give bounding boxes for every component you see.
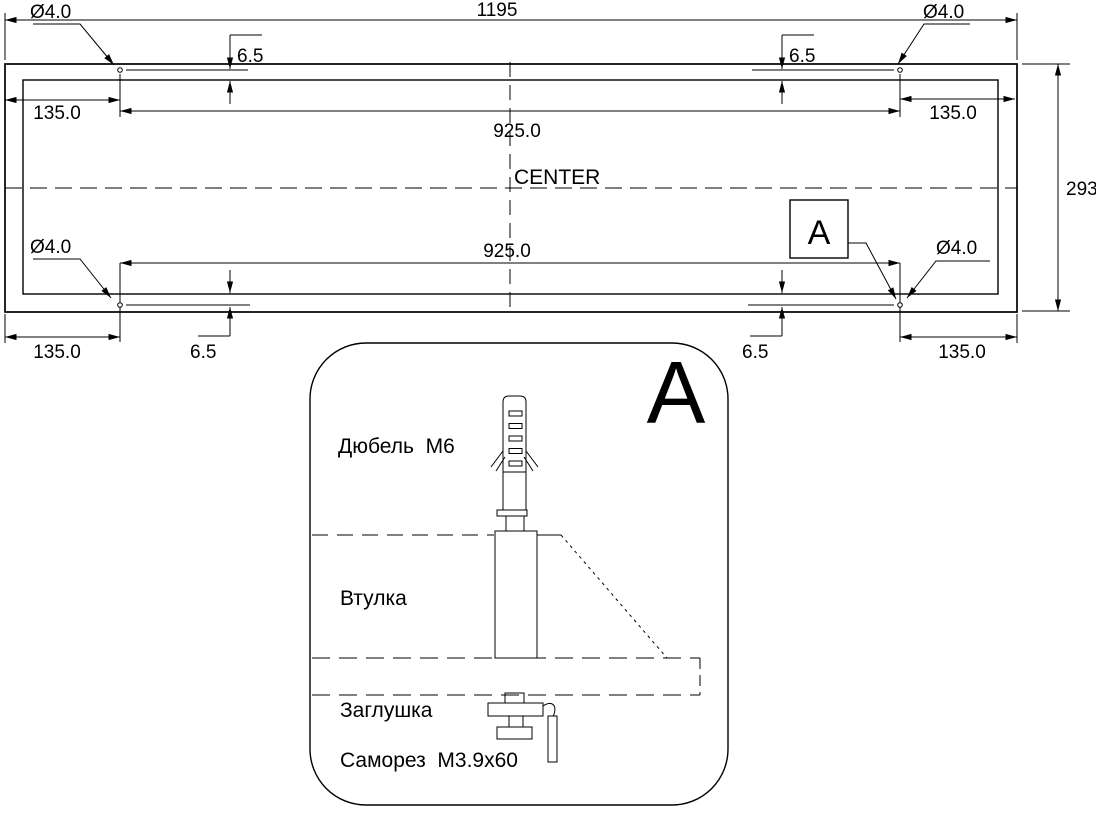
dim-overall-width: 1195 — [5, 0, 1017, 60]
dim-hole-offset-text: 6.5 — [742, 342, 768, 363]
dim-overall-height-text: 293 — [1066, 179, 1096, 200]
dim-hole-offset-bottom-left: 6.5 — [190, 270, 230, 363]
dim-hole-spacing-bottom: 925.0 — [120, 241, 900, 263]
dim-hole-diameter-bottom-right: Ø4.0 — [907, 238, 990, 298]
screw-body — [548, 716, 557, 762]
dim-overall-width-text: 1195 — [477, 0, 518, 21]
dim-hole-offset-text: 6.5 — [237, 46, 263, 67]
detail-a-callout-text: A — [808, 214, 831, 252]
dowel-hatched-shaft — [503, 472, 526, 510]
dim-hole-offset-text: 6.5 — [190, 342, 216, 363]
dim-edge-offset-bottom-left: 135.0 — [5, 314, 120, 363]
detail-a-callout: A — [790, 200, 896, 299]
dim-hole-spacing-text: 925.0 — [493, 121, 541, 142]
dim-edge-offset-text: 135.0 — [929, 103, 977, 124]
dim-hole-diameter-text: Ø4.0 — [936, 238, 977, 259]
dim-hole-diameter-text: Ø4.0 — [30, 237, 71, 258]
dim-overall-height: 293 — [1022, 64, 1096, 311]
dim-edge-offset-text: 135.0 — [33, 342, 81, 363]
dim-hole-offset-bottom-right: 6.5 — [742, 270, 782, 363]
dim-hole-diameter-text: Ø4.0 — [30, 2, 71, 23]
hole-top-left — [118, 68, 123, 73]
dim-hole-offset-text: 6.5 — [789, 46, 815, 67]
dowel-collar — [497, 510, 527, 516]
cad-drawing-canvas: CENTER 1195 29 — [0, 0, 1096, 813]
dim-hole-spacing-text: 925.0 — [483, 241, 531, 262]
plug-cap — [497, 727, 532, 739]
hole-top-right — [898, 68, 903, 73]
dim-edge-offset-text: 135.0 — [33, 103, 81, 124]
bushing-drawing — [495, 531, 537, 658]
drawing-sheet: CENTER 1195 29 — [0, 0, 1096, 813]
label-bushing: Втулка — [340, 587, 407, 610]
dim-hole-diameter-top-right: Ø4.0 — [898, 2, 970, 64]
dim-hole-diameter-bottom-left: Ø4.0 — [30, 237, 111, 298]
dim-edge-offset-text: 135.0 — [938, 342, 986, 363]
label-plug: Заглушка — [340, 699, 433, 722]
dim-hole-diameter-top-left: Ø4.0 — [30, 2, 114, 65]
label-dowel: Дюбель M6 — [338, 435, 455, 458]
panel-top-view: CENTER 1195 29 — [5, 0, 1096, 363]
dim-edge-offset-top-left: 135.0 — [5, 100, 120, 124]
label-screw: Саморез M3.9x60 — [340, 749, 518, 772]
plug-flange — [488, 703, 543, 716]
detail-view-title: A — [647, 343, 706, 442]
dowel-drawing — [491, 396, 538, 531]
hole-bottom-left — [118, 303, 123, 308]
detail-view-a: A Дюбель M6 Втулка Заглушка Саморез M3.9… — [310, 343, 728, 805]
center-lines: CENTER — [5, 62, 1017, 311]
dim-edge-offset-bottom-right: 135.0 — [900, 314, 1017, 363]
dim-hole-diameter-text: Ø4.0 — [923, 2, 964, 23]
center-label: CENTER — [514, 166, 600, 189]
hole-bottom-right — [898, 303, 903, 308]
